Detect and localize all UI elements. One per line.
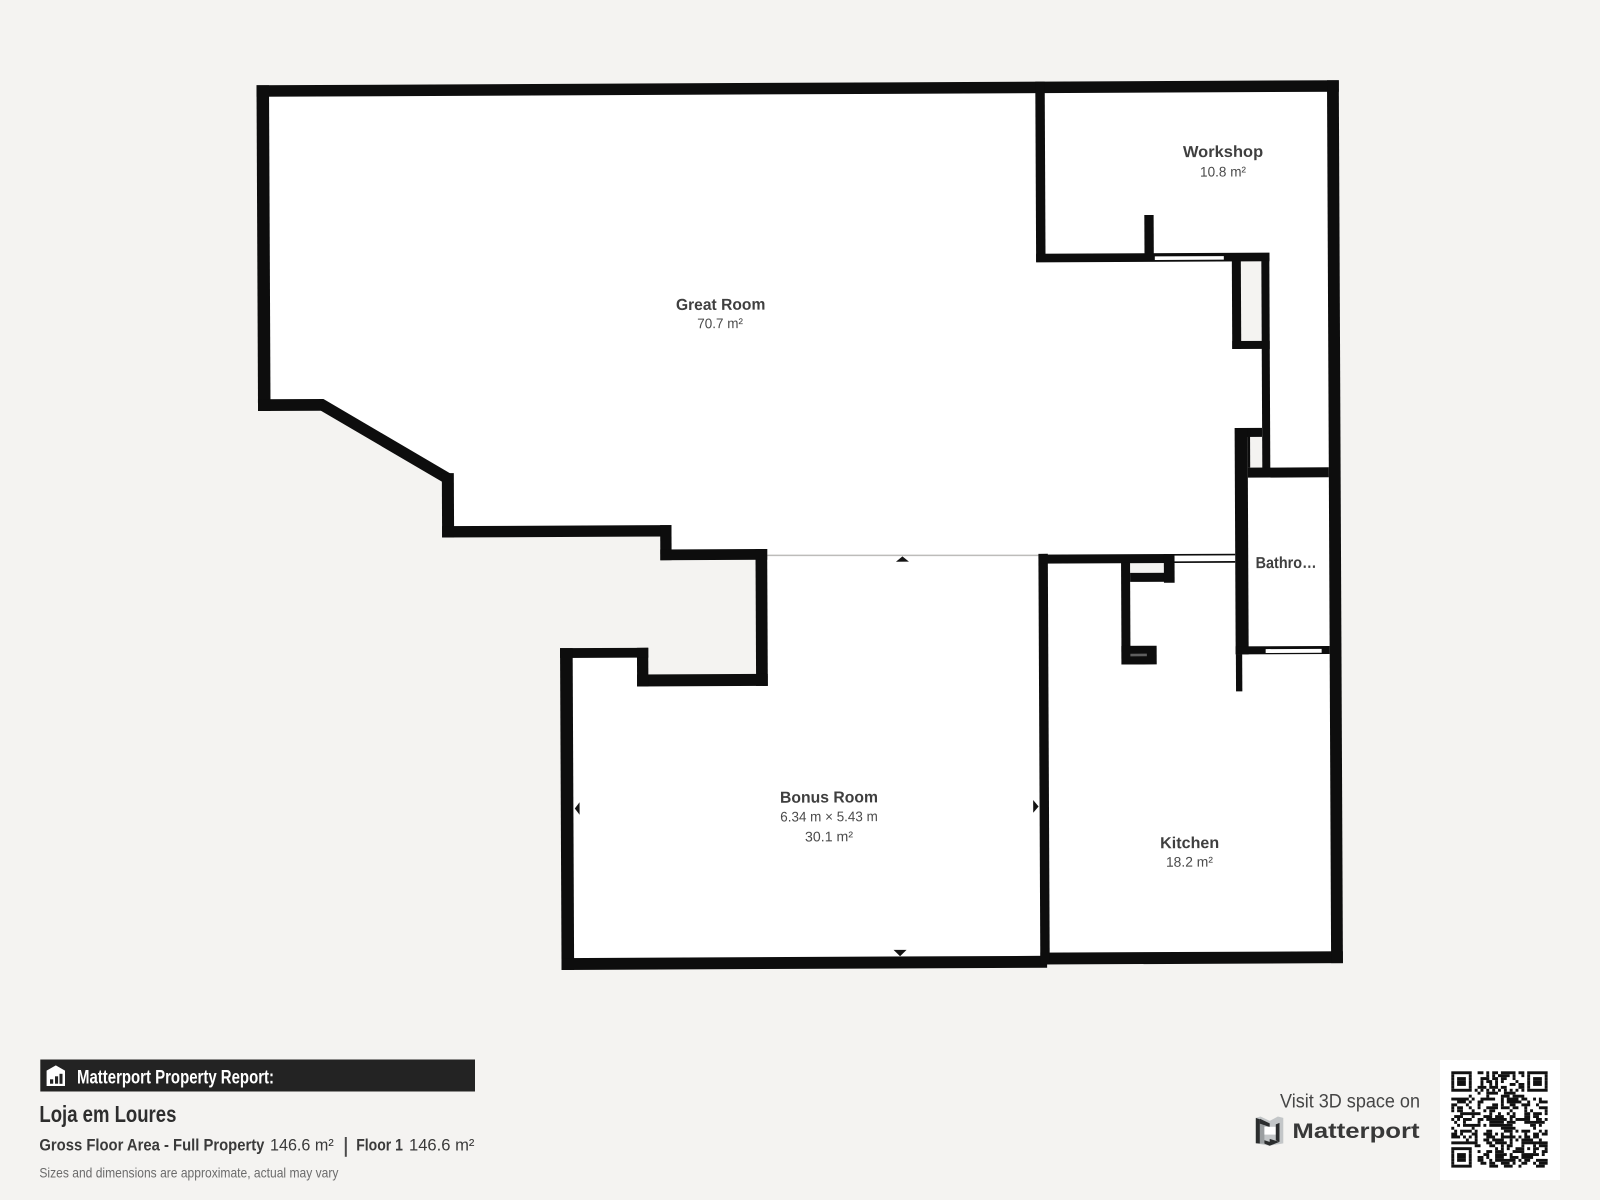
svg-text:146.6 m²: 146.6 m² [270, 1137, 334, 1155]
svg-text:Great Room: Great Room [676, 297, 765, 314]
svg-text:10.8 m²: 10.8 m² [1200, 163, 1246, 179]
svg-text:Bathro…: Bathro… [1256, 555, 1317, 572]
svg-text:Matterport: Matterport [1292, 1120, 1419, 1143]
svg-text:Sizes and dimensions are appro: Sizes and dimensions are approximate, ac… [39, 1164, 338, 1180]
svg-text:6.34 m × 5.43 m: 6.34 m × 5.43 m [780, 808, 878, 824]
svg-text:Loja em Loures: Loja em Loures [39, 1101, 176, 1127]
svg-text:Floor 1: Floor 1 [356, 1137, 403, 1155]
svg-text:Visit 3D space on: Visit 3D space on [1280, 1092, 1420, 1113]
svg-text:Bonus Room: Bonus Room [780, 789, 878, 806]
svg-text:70.7 m²: 70.7 m² [697, 315, 743, 331]
svg-text:Kitchen: Kitchen [1160, 835, 1219, 852]
svg-text:18.2 m²: 18.2 m² [1166, 854, 1213, 870]
svg-text:Gross Floor Area - Full Proper: Gross Floor Area - Full Property [39, 1137, 265, 1155]
svg-text:Matterport Property Report:: Matterport Property Report: [77, 1067, 274, 1088]
svg-text:Workshop: Workshop [1183, 144, 1264, 161]
svg-text:146.6 m²: 146.6 m² [409, 1137, 475, 1155]
svg-text:30.1 m²: 30.1 m² [805, 828, 853, 844]
